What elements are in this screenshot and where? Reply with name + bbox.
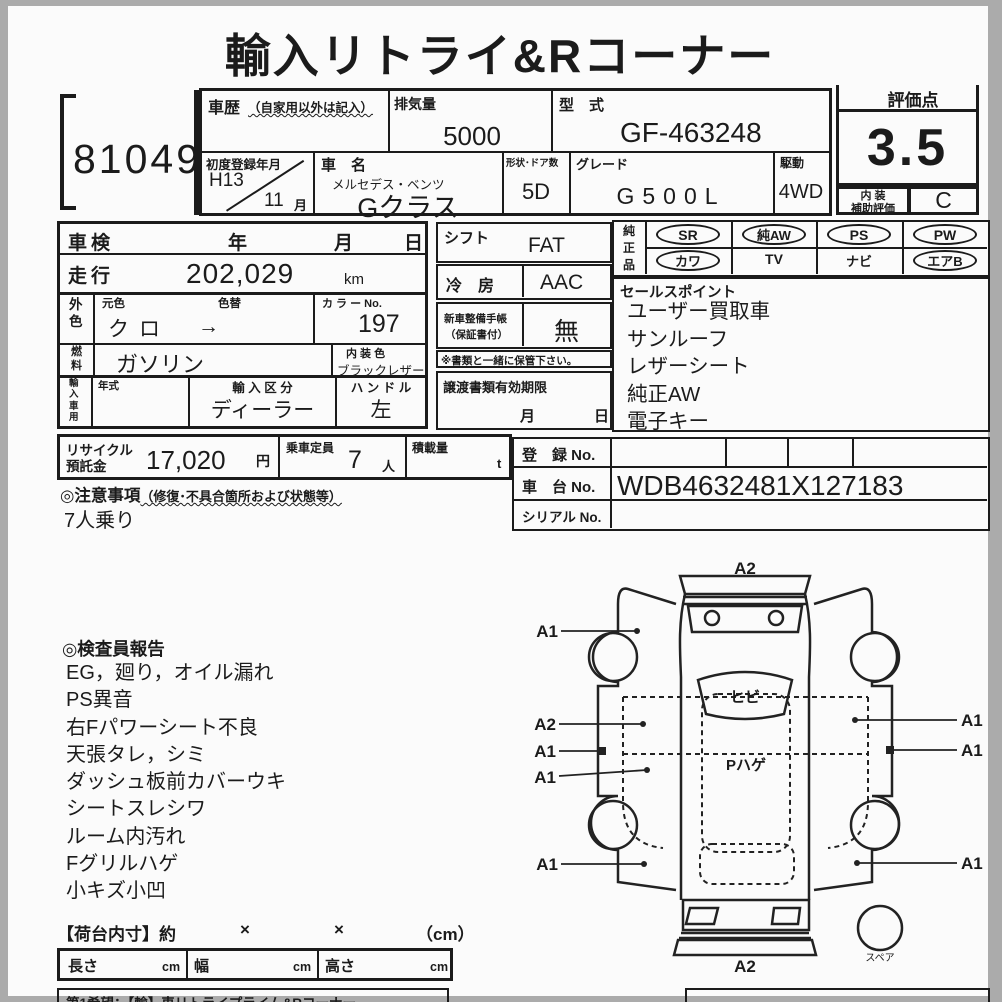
oem-item-tv: TV: [742, 251, 806, 267]
oem-item-ps: PS: [827, 224, 891, 245]
interior-color-label: 内 装 色: [346, 345, 385, 361]
damage-label-a1-left-3: A1: [536, 855, 558, 874]
import-use-label: 輸入車用: [69, 378, 81, 424]
chassis-no-value: WDB4632481X127183: [617, 470, 903, 502]
footer-preference-text: 第1希望：【輸】車リトライプライム&Rコーナー: [66, 992, 356, 1002]
spare-tire-label: スペア: [865, 953, 894, 964]
transfer-docs-box: 譲渡書類有効期限 月 日: [436, 371, 612, 430]
damage-label-a1-left-1: A1: [534, 742, 556, 761]
spare-tire-icon: [858, 906, 902, 950]
cargo-width-label: 幅: [194, 955, 209, 976]
first-registration-month-unit: 月: [294, 195, 307, 214]
grade-label: グレード: [576, 154, 628, 173]
cargo-length-unit: cm: [162, 960, 180, 974]
shift-label: シフト: [444, 227, 489, 248]
transfer-month-unit: 月: [520, 405, 535, 426]
model-year-label: 年式: [98, 378, 119, 393]
color-no-value: 197: [358, 310, 400, 339]
caution-title: ◎注意事項（修復･不具合箇所および状態等）: [60, 482, 342, 506]
inspector-report-item: EG，廻り，オイル漏れ: [66, 660, 286, 687]
caution-title-head: ◎注意事項: [60, 487, 140, 505]
history-label: 車歴: [208, 94, 240, 118]
car-name-label: 車 名: [321, 154, 366, 175]
original-color-label: 元色: [102, 295, 125, 311]
damage-label-a1-right-3: A1: [961, 854, 983, 873]
sales-point-item: 電子キー: [627, 408, 770, 436]
sales-points-list: ユーザー買取車 サンルーフ レザーシート 純正AW 電子キー: [627, 298, 770, 436]
damage-label-a1-left-2: A1: [534, 768, 556, 787]
interior-label-line2: 補助評価: [839, 203, 907, 216]
ac-label: 冷 房: [446, 272, 494, 296]
auction-sheet: 輸入リトライ&Rコーナー 81049 評価点 3.5 内 装 補助評価 C 車歴…: [0, 0, 1002, 1002]
recycle-value: 17,020: [146, 445, 226, 476]
lot-number: 81049: [73, 136, 202, 183]
oem-equipment-grid: 純正品 SR 純AW PS PW カワ TV ナビ エアB: [612, 220, 990, 277]
fuel-value: ガソリン: [116, 347, 204, 379]
vehicle-header-table: 車歴 （自家用以外は記入） 排気量 5000 型 式 GF-463248 初度登…: [199, 88, 832, 216]
service-book-value: 無: [554, 312, 579, 348]
capacity-label: 乗車定員: [286, 439, 334, 456]
serial-no-label: シリアル No.: [522, 506, 601, 526]
oem-label: 純正品: [623, 223, 637, 273]
ac-value: AAC: [540, 271, 583, 295]
transfer-docs-label: 譲渡書類有効期限: [443, 377, 547, 396]
sales-point-item: ユーザー買取車: [627, 298, 770, 326]
color-no-label: カ ラ ー No.: [322, 295, 382, 311]
cargo-height-unit: cm: [430, 960, 448, 974]
sales-point-item: サンルーフ: [627, 326, 770, 354]
mileage-unit: km: [344, 271, 364, 288]
sales-point-item: レザーシート: [627, 353, 770, 381]
drive-label: 駆動: [780, 154, 804, 171]
rating-header: 評価点: [848, 86, 978, 111]
shape-doors-value: 5D: [504, 179, 568, 205]
shift-value: FAT: [528, 234, 565, 258]
mileage-value: 202,029: [186, 258, 294, 290]
cargo-table: 長さ cm 幅 cm 高さ cm: [57, 948, 453, 981]
inspector-report-title: ◎検査員報告: [62, 636, 165, 661]
inspector-report-item: シートスレシワ: [66, 796, 286, 823]
exterior-color-label: 外色: [69, 297, 85, 331]
color-change-label: 色替: [218, 295, 241, 311]
document-note: ※書類と一緒に保管下さい。: [441, 353, 577, 368]
oem-item-airbag: エアB: [913, 250, 977, 271]
windshield-crack-note: ヒビ: [730, 689, 760, 706]
damage-label-a2-bottom: A2: [734, 957, 756, 976]
car-damage-diagram: A2 A1 A2 A1 A1 A1 A1 A1 A1 A2 ヒビ Pハゲ スペア: [528, 552, 992, 982]
import-class-value: ディーラー: [190, 394, 335, 424]
displacement-value: 5000: [422, 121, 522, 152]
mileage-label: 走行: [68, 261, 114, 288]
roof-paint-note: Pハゲ: [726, 756, 766, 774]
load-label: 積載量: [412, 439, 448, 456]
inspector-report-item: 天張タレ，シミ: [66, 742, 286, 769]
inspector-report-item: 小キズ小凹: [66, 878, 286, 905]
rating-tick-right: [976, 85, 979, 111]
shape-doors-label: 形状･ドア数: [506, 155, 558, 169]
shift-box: シフト FAT: [436, 222, 612, 263]
model-code-value: GF-463248: [620, 117, 762, 149]
oem-item-pw: PW: [913, 224, 977, 245]
load-unit: t: [497, 456, 501, 471]
interior-rating-label-box: 内 装 補助評価: [836, 186, 910, 215]
interior-rating-value-box: C: [908, 186, 979, 215]
handle-value: 左: [337, 394, 425, 424]
cargo-x1: ×: [240, 920, 250, 940]
fuel-label: 燃料: [71, 346, 84, 374]
oem-item-kawa: カワ: [656, 250, 720, 271]
wheels: [589, 633, 902, 950]
caution-title-note: （修復･不具合箇所および状態等）: [140, 489, 342, 504]
grade-value: G500L: [571, 183, 771, 210]
service-book-box: 新車整備手帳 （保証書付） 無: [436, 302, 612, 349]
inspector-report-item: ダッシュ板前カバーウキ: [66, 769, 286, 796]
capacity-value: 7: [348, 446, 362, 475]
vehicle-info-table: 車検 年 月 日 走行 202,029 km 外色 元色 クロ 色替 → カ ラ…: [57, 221, 428, 429]
displacement-label: 排気量: [394, 94, 436, 114]
recycle-row: リサイクル 預託金 17,020 円 乗車定員 7 人 積載量 t: [57, 434, 512, 480]
color-change-arrow: →: [198, 315, 219, 339]
shaken-year-unit: 年: [228, 228, 247, 255]
ac-box: 冷 房 AAC: [436, 264, 612, 300]
oem-item-sr: SR: [656, 224, 720, 245]
footer-right-box: [685, 988, 990, 1002]
cargo-height-label: 高さ: [325, 955, 355, 976]
first-registration-month: 11: [264, 190, 284, 212]
transfer-day-unit: 日: [594, 405, 609, 426]
damage-label-a1-front-left: A1: [536, 622, 558, 641]
inspector-report-item: Fグリルハゲ: [66, 851, 286, 878]
recycle-unit: 円: [256, 451, 270, 471]
damage-label-a2-top: A2: [734, 559, 756, 578]
shaken-month-unit: 月: [334, 228, 353, 255]
rating-score-box: 3.5: [836, 109, 979, 186]
damage-labels: A2 A1 A2 A1 A1 A1 A1 A1 A1 A2 ヒビ Pハゲ スペア: [534, 559, 982, 976]
capacity-unit: 人: [382, 456, 395, 475]
car-name: Gクラス: [314, 186, 502, 225]
shaken-day-unit: 日: [404, 228, 423, 255]
damage-label-a2-left: A2: [534, 715, 556, 734]
cargo-width-unit: cm: [293, 960, 311, 974]
page-title: 輸入リトライ&Rコーナー: [150, 20, 850, 86]
cargo-length-label: 長さ: [68, 955, 98, 976]
oem-item-aw: 純AW: [742, 224, 806, 245]
inspector-report-item: ルーム内汚れ: [66, 824, 286, 851]
service-book-label1: 新車整備手帳: [444, 311, 507, 326]
service-book-label2: （保証書付）: [445, 327, 508, 342]
cargo-title: 【荷台内寸】約: [57, 920, 176, 945]
caution-body: 7人乗り: [64, 504, 135, 533]
damage-label-a1-right-1: A1: [961, 711, 983, 730]
original-color-value: クロ: [108, 313, 170, 343]
drive-value: 4WD: [773, 181, 829, 204]
interior-grade: C: [935, 187, 952, 214]
model-code-label: 型 式: [559, 94, 604, 115]
history-note: （自家用以外は記入）: [248, 97, 373, 116]
oem-item-navi: ナビ: [827, 251, 891, 270]
cargo-x2: ×: [334, 920, 344, 940]
chassis-no-label: 車 台 No.: [522, 476, 595, 497]
rating-tick-left: [836, 85, 839, 111]
shaken-label: 車検: [68, 228, 114, 255]
inspector-report-list: EG，廻り，オイル漏れ PS異音 右Fパワーシート不良 天張タレ，シミ ダッシュ…: [66, 660, 286, 906]
footer-preference-box: 第1希望：【輸】車リトライプライム&Rコーナー: [57, 988, 449, 1002]
first-registration-year: H13: [209, 170, 244, 192]
document-note-strip: ※書類と一緒に保管下さい。: [436, 350, 612, 368]
sales-points-box: セールスポイント ユーザー買取車 サンルーフ レザーシート 純正AW 電子キー: [612, 277, 990, 432]
inspector-report-item: PS異音: [66, 687, 286, 714]
sales-point-item: 純正AW: [627, 381, 770, 409]
recycle-label2: 預託金: [66, 455, 107, 475]
registration-table: 登 録 No. 車 台 No. WDB4632481X127183 シリアル N…: [512, 437, 990, 531]
cargo-unit: （cm）: [416, 920, 475, 945]
unfolded-panel-dashed-lines: [623, 694, 868, 884]
rating-score: 3.5: [867, 118, 948, 178]
registration-no-label: 登 録 No.: [522, 444, 595, 465]
damage-label-a1-right-2: A1: [961, 741, 983, 760]
inspector-report-item: 右Fパワーシート不良: [66, 715, 286, 742]
interior-label-line1: 内 装: [839, 190, 907, 203]
